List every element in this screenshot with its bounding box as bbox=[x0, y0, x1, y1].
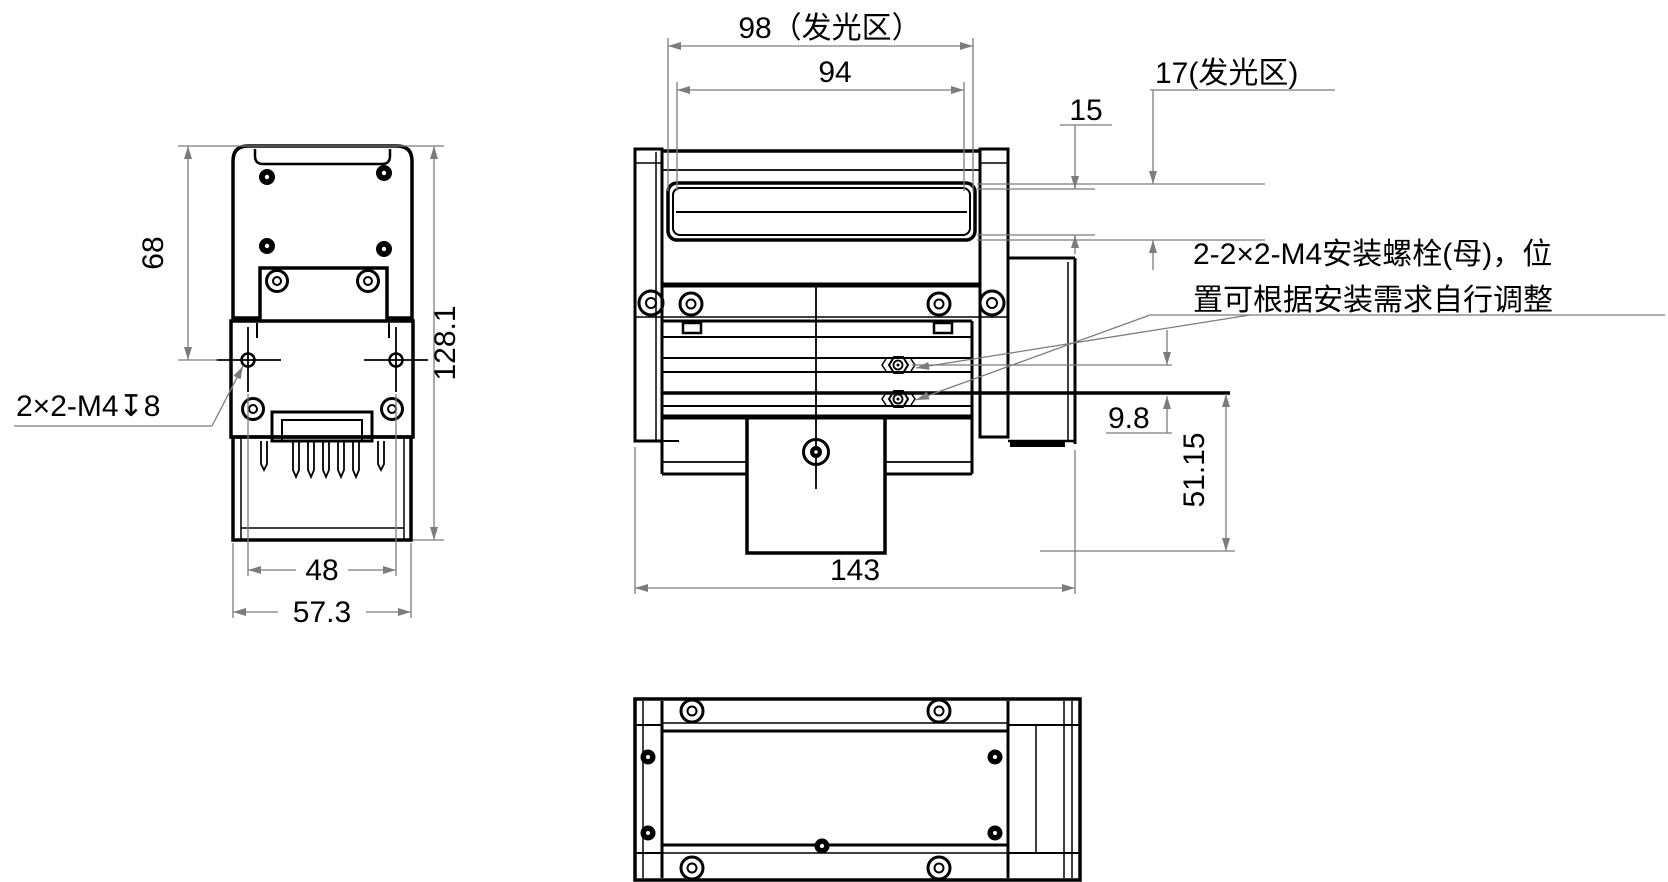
screw-icon bbox=[641, 750, 1003, 854]
front-view-body bbox=[635, 149, 1230, 553]
engineering-drawing: 68 128.1 48 57.3 2×2-M4↧8 bbox=[0, 0, 1668, 882]
m4-hole-right bbox=[364, 327, 428, 392]
mounting-note-line1: 2-2×2-M4安装螺栓(母)，位 bbox=[1193, 238, 1552, 271]
screw-icon bbox=[259, 165, 392, 257]
front-view-dimensions: 98（发光区） 94 15 17(发光区) 9.8 51.15 bbox=[635, 12, 1665, 594]
ring-screw-icon bbox=[267, 271, 379, 292]
side-mount-block bbox=[1008, 258, 1075, 447]
ring-screw-icon bbox=[681, 700, 950, 879]
emitting-window bbox=[668, 183, 975, 240]
m4-hole-left bbox=[216, 327, 281, 392]
dim-51-15: 51.15 bbox=[1178, 432, 1211, 507]
drawing-canvas: 68 128.1 48 57.3 2×2-M4↧8 bbox=[0, 0, 1668, 882]
mounting-bolt-icon bbox=[882, 357, 915, 407]
connector-pins bbox=[261, 441, 384, 477]
mounting-note-line2: 置可根据安装需求自行调整 bbox=[1193, 284, 1553, 317]
dim-57-3: 57.3 bbox=[293, 596, 351, 629]
bottom-view bbox=[635, 699, 1080, 880]
dim-48: 48 bbox=[305, 554, 338, 587]
dim-15: 15 bbox=[1069, 94, 1102, 127]
front-view: 98（发光区） 94 15 17(发光区) 9.8 51.15 bbox=[635, 12, 1665, 594]
thread-callout: 2×2-M4↧8 bbox=[16, 390, 160, 423]
side-view: 68 128.1 48 57.3 2×2-M4↧8 bbox=[14, 146, 462, 629]
dim-9-8: 9.8 bbox=[1108, 402, 1150, 435]
ring-screw-icon bbox=[243, 399, 403, 420]
dim-98-emitting-width: 98（发光区） bbox=[738, 12, 921, 45]
dim-68: 68 bbox=[137, 236, 170, 269]
dim-128-1: 128.1 bbox=[429, 305, 462, 380]
dim-17-emitting-height: 17(发光区) bbox=[1155, 57, 1298, 90]
side-view-dimensions: 68 128.1 48 57.3 2×2-M4↧8 bbox=[14, 146, 462, 629]
dim-94: 94 bbox=[818, 56, 851, 89]
ring-screw-icon bbox=[639, 291, 1004, 315]
dim-143: 143 bbox=[830, 554, 880, 587]
end-block bbox=[1008, 701, 1080, 878]
